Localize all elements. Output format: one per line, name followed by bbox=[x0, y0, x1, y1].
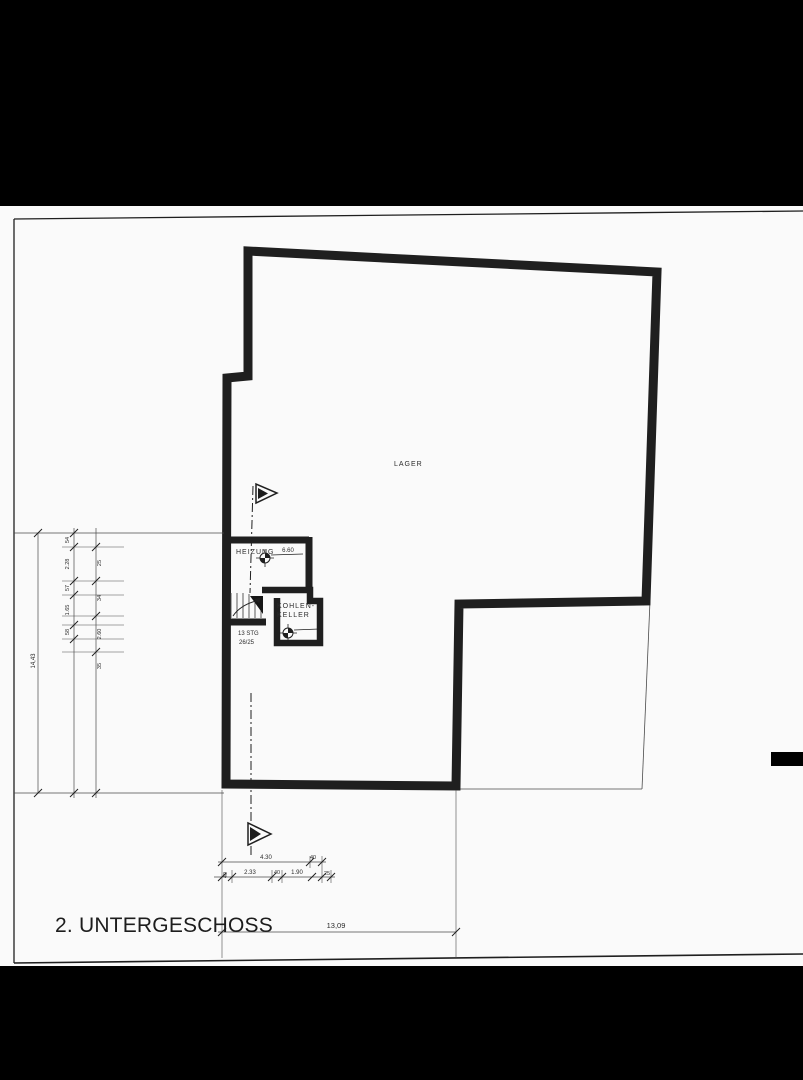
dim-value: 1.65 bbox=[65, 605, 71, 616]
stair-note-line1: 13 STG bbox=[238, 631, 259, 637]
dim-value: 58 bbox=[65, 629, 71, 635]
dim-value: 40 bbox=[223, 872, 229, 878]
section-marker-icon bbox=[256, 484, 277, 503]
dim-total-left: 14,43 bbox=[31, 653, 37, 669]
building-outline bbox=[226, 251, 657, 786]
left-dimension-chain bbox=[14, 528, 224, 798]
letterbox-bottom bbox=[0, 966, 803, 1080]
dim-value: 1.90 bbox=[291, 870, 303, 876]
letterbox-top bbox=[0, 0, 803, 206]
left-dimension-labels: 54 2.28 57 1.65 58 25 34 2.60 35 14,43 bbox=[31, 537, 103, 669]
sheet-frame bbox=[14, 211, 803, 963]
dim-value: 34 bbox=[97, 595, 103, 601]
stair-note-line2: 26/25 bbox=[239, 640, 255, 646]
section-marker-icon bbox=[248, 823, 271, 845]
sheet-title: 2. UNTERGESCHOSS bbox=[55, 914, 273, 937]
dim-value: 2.33 bbox=[244, 870, 256, 876]
dim-value: 4.30 bbox=[260, 855, 272, 861]
dim-value: 57 bbox=[65, 585, 71, 591]
dim-value: 25 bbox=[97, 560, 103, 566]
outside-boundary-lines bbox=[460, 601, 650, 789]
dim-value: 25 bbox=[324, 871, 330, 877]
drawing-sheet: LAGER HEIZUNG KOHLEN- KELLER 13 STG 26/2… bbox=[0, 206, 803, 966]
dim-value: 2.60 bbox=[97, 629, 103, 640]
floor-plan-canvas: LAGER HEIZUNG KOHLEN- KELLER 13 STG 26/2… bbox=[0, 206, 803, 966]
dim-total-bottom: 13,09 bbox=[327, 921, 346, 930]
room-label-kohlenkeller-2: KELLER bbox=[277, 612, 310, 619]
dim-value: 35 bbox=[97, 663, 103, 669]
dim-value: 40 bbox=[310, 855, 316, 861]
staircase bbox=[231, 593, 263, 618]
scan-mark bbox=[771, 752, 803, 766]
dim-value: 2.28 bbox=[65, 559, 71, 570]
dim-value: 54 bbox=[65, 537, 71, 543]
level-value: 6.60 bbox=[282, 548, 294, 554]
dim-value: 40 bbox=[274, 870, 280, 876]
room-label-kohlenkeller-1: KOHLEN- bbox=[277, 603, 315, 610]
room-label-heizung: HEIZUNG bbox=[236, 549, 275, 556]
room-label-lager: LAGER bbox=[394, 461, 423, 468]
level-marker-icon bbox=[279, 624, 319, 642]
